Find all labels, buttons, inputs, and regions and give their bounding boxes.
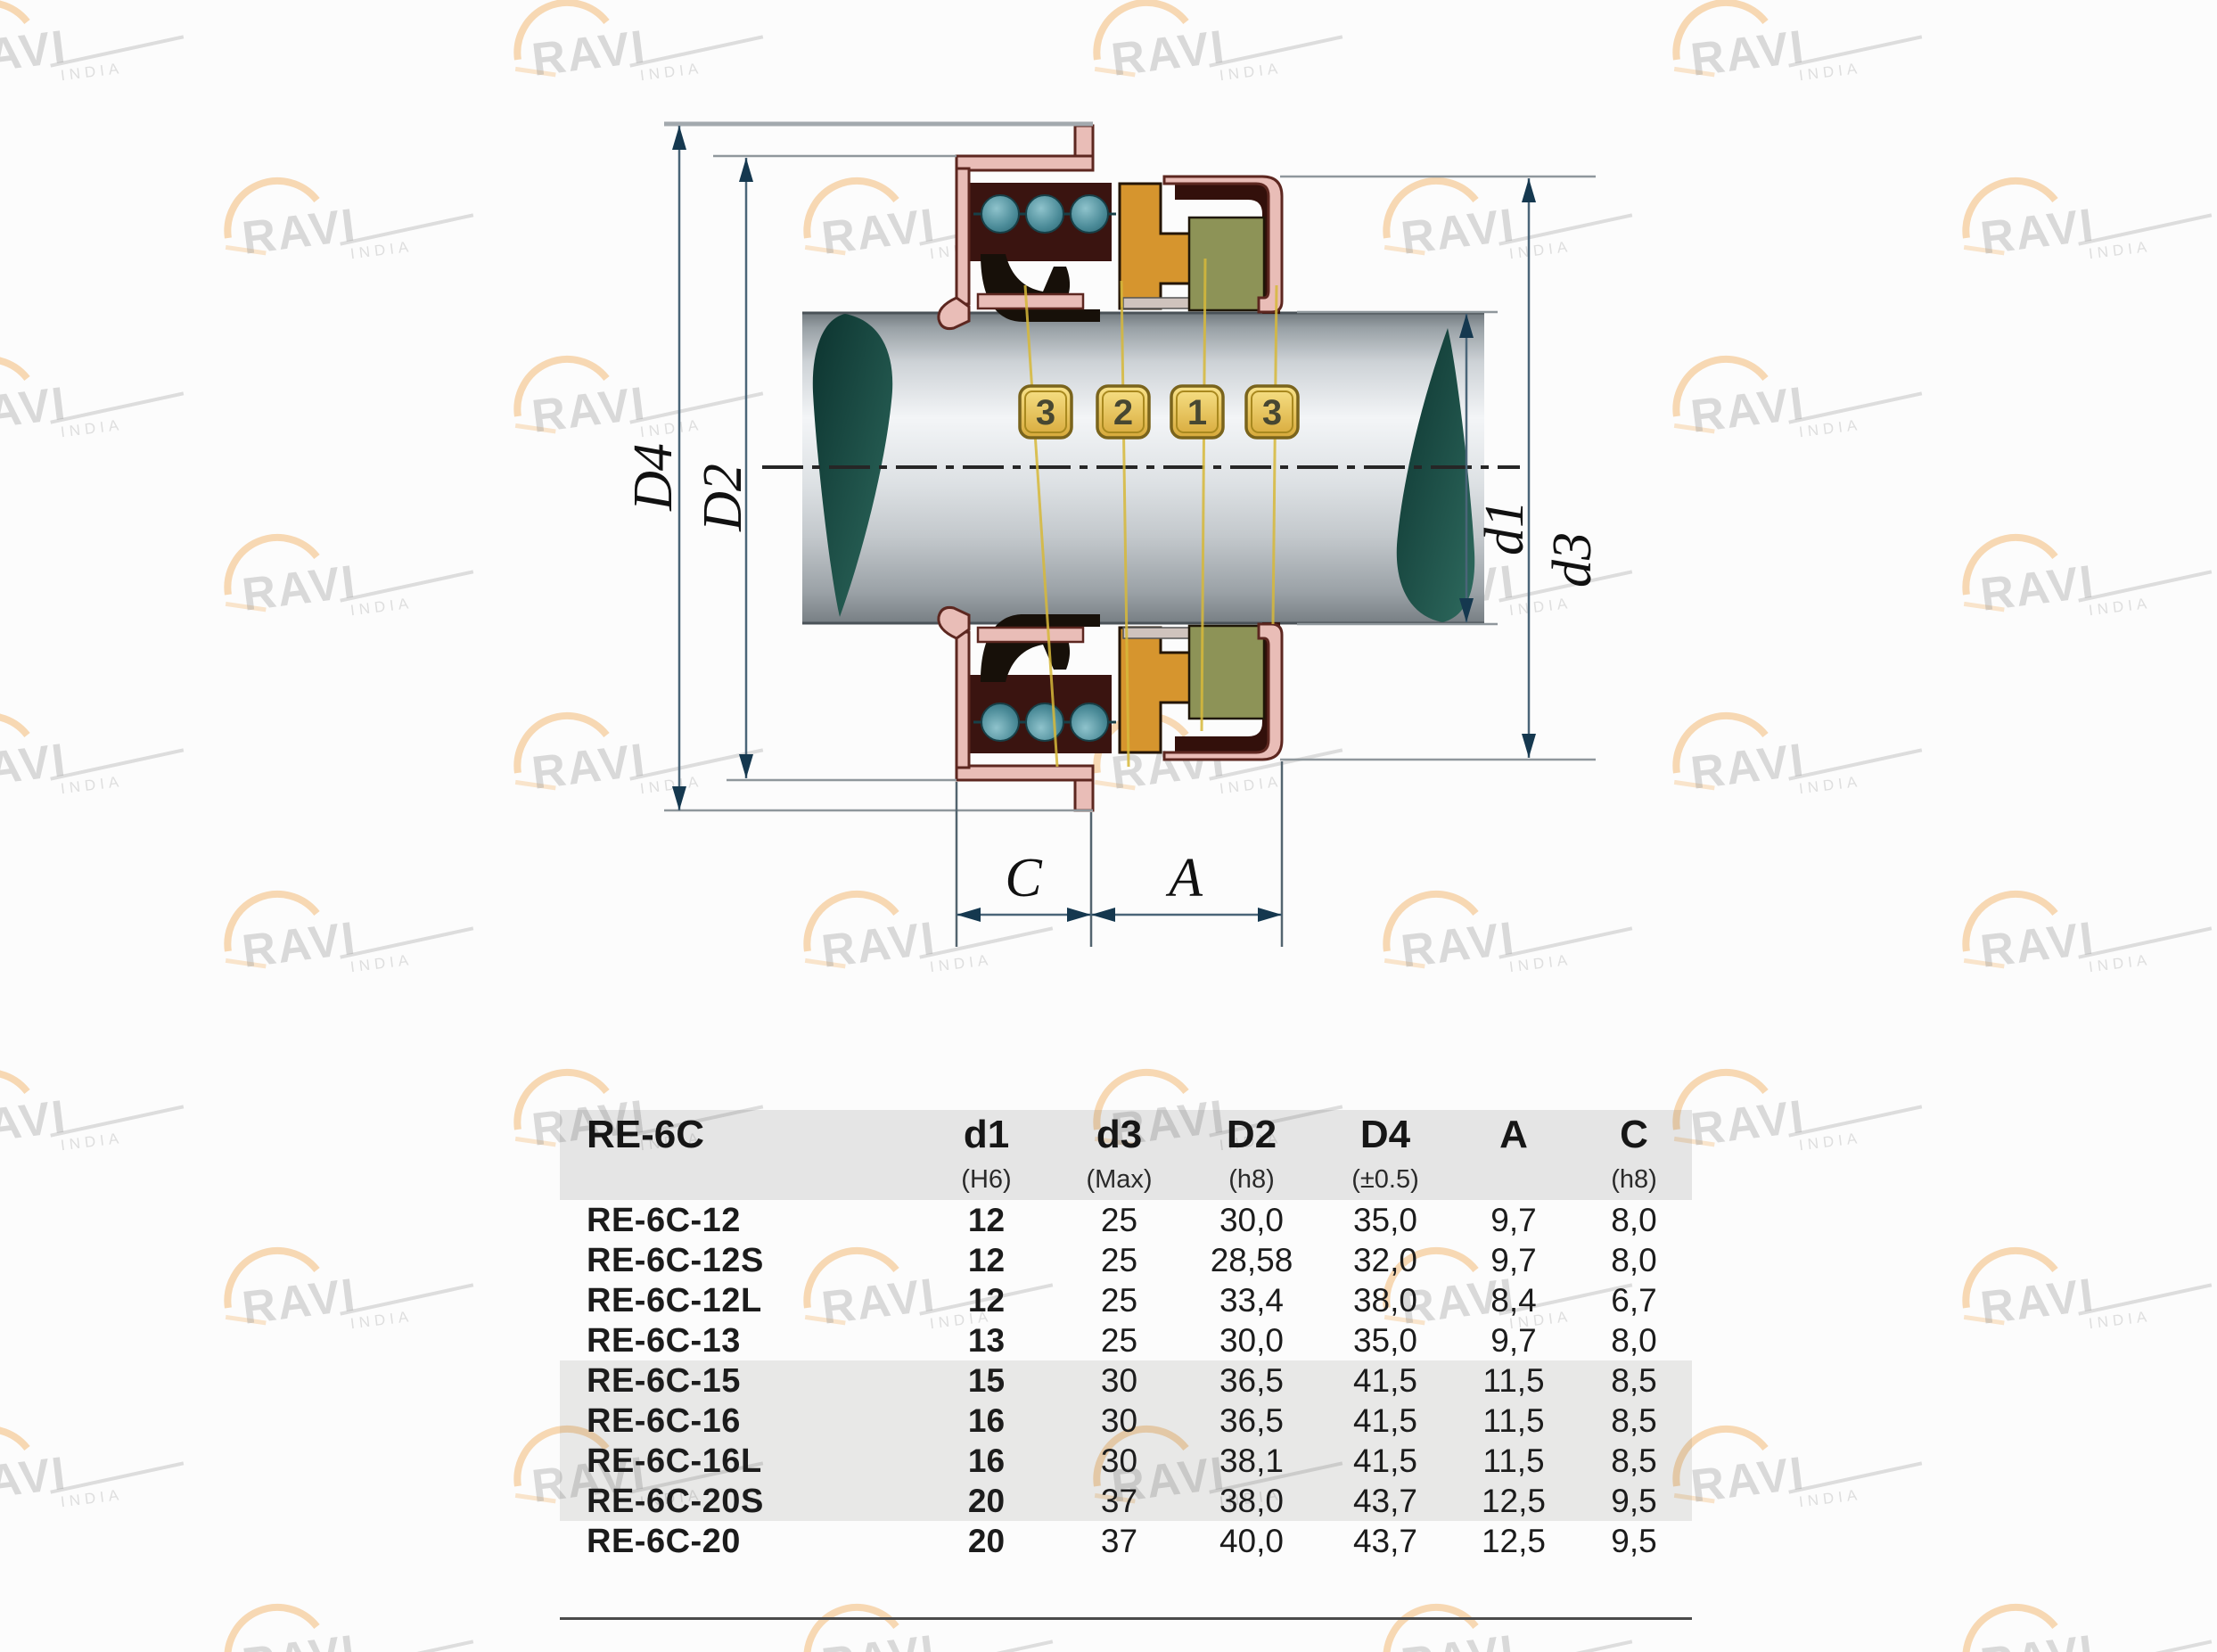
svg-text:RAVI: RAVI: [240, 1270, 360, 1335]
gland-top-wall: [957, 156, 1093, 170]
dim-label-D4: D4: [623, 443, 684, 512]
watermark: RAVIINDIA: [1653, 1388, 1931, 1527]
dim-label-d3: d3: [1542, 532, 1603, 588]
dim-label-d1: d1: [1474, 500, 1535, 555]
table-row: RE-6C-16 16 30 36,5 41,5 11,5 8,5: [560, 1401, 1692, 1441]
col-tolerance-D4: (±0.5): [1319, 1165, 1451, 1195]
seal-cross-section-diagram: 3 2 1 3: [0, 0, 2217, 1052]
spring-coil: [1071, 195, 1108, 233]
svg-text:INDIA: INDIA: [1798, 1130, 1862, 1154]
svg-text:INDIA: INDIA: [1798, 1486, 1862, 1510]
badge-label: 2: [1113, 393, 1133, 432]
model-name: RE-6C-15: [560, 1364, 918, 1398]
col-header-d3: d3: [1055, 1113, 1184, 1157]
badge-label: 1: [1187, 393, 1207, 432]
table-header-row: RE-6C d1 d3 D2 D4 A C: [560, 1110, 1692, 1159]
gland-foot: [939, 298, 969, 329]
page: RAVIINDIARAVIINDIARAVIINDIARAVIINDIARAVI…: [0, 0, 2217, 1652]
model-name: RE-6C-16L: [560, 1444, 918, 1478]
watermark: RAVIINDIA: [1942, 1210, 2217, 1349]
svg-text:RAVI: RAVI: [0, 1448, 70, 1513]
table-row: RE-6C-20 20 37 40,0 43,7 12,5 9,5: [560, 1521, 1692, 1561]
table-row: RE-6C-13 13 25 30,0 35,0 9,7 8,0: [560, 1320, 1692, 1360]
model-name: RE-6C-12S: [560, 1244, 918, 1278]
table-row: RE-6C-12S 12 25 28,58 32,0 9,7 8,0: [560, 1240, 1692, 1280]
svg-text:RAVI: RAVI: [1978, 1626, 2098, 1652]
svg-text:INDIA: INDIA: [60, 1130, 124, 1154]
svg-text:RAVI: RAVI: [819, 1626, 940, 1652]
col-header-D2: D2: [1184, 1113, 1319, 1157]
watermark: RAVIINDIA: [0, 1031, 193, 1171]
model-name: RE-6C-20S: [560, 1484, 918, 1518]
badge-label: 3: [1262, 393, 1282, 432]
svg-text:INDIA: INDIA: [349, 1308, 414, 1332]
watermark: RAVIINDIA: [204, 1566, 482, 1652]
dim-label-A: A: [1165, 848, 1203, 908]
svg-text:RAVI: RAVI: [1688, 1448, 1809, 1513]
table-row: RE-6C-16L 16 30 38,1 41,5 11,5 8,5: [560, 1441, 1692, 1481]
svg-text:RAVI: RAVI: [240, 1626, 360, 1652]
col-tolerance-D2: (h8): [1184, 1165, 1319, 1195]
model-name: RE-6C-12L: [560, 1284, 918, 1318]
watermark: RAVIINDIA: [1653, 1031, 1931, 1171]
col-tolerance-d1: (H6): [918, 1165, 1055, 1195]
model-name: RE-6C-20: [560, 1525, 918, 1558]
col-header-C: C: [1576, 1113, 1692, 1157]
model-name: RE-6C-13: [560, 1324, 918, 1358]
svg-text:RAVI: RAVI: [0, 1091, 70, 1156]
table-row: RE-6C-12 12 25 30,0 35,0 9,7 8,0: [560, 1200, 1692, 1240]
bellows: [981, 254, 1100, 322]
svg-text:RAVI: RAVI: [1978, 1270, 2098, 1335]
col-header-d1: d1: [918, 1113, 1055, 1157]
spring-coil: [981, 195, 1019, 233]
dim-label-D2: D2: [693, 464, 753, 532]
watermark: RAVIINDIA: [204, 1210, 482, 1349]
svg-text:RAVI: RAVI: [1399, 1626, 1519, 1652]
dimension-table: RE-6C d1 d3 D2 D4 A C (H6) (Max) (h8) (±…: [560, 1110, 1692, 1620]
svg-text:RAVI: RAVI: [1688, 1091, 1809, 1156]
table-row: RE-6C-12L 12 25 33,4 38,0 8,4 6,7: [560, 1280, 1692, 1320]
seal-assembly-lower: [939, 607, 1282, 810]
badge-label: 3: [1036, 393, 1055, 432]
watermark: RAVIINDIA: [1942, 1566, 2217, 1652]
seal-assembly-upper: [939, 126, 1282, 329]
table-subheader-row: (H6) (Max) (h8) (±0.5) (h8): [560, 1159, 1692, 1200]
col-header-D4: D4: [1319, 1113, 1451, 1157]
col-tolerance-C: (h8): [1576, 1165, 1692, 1195]
gland-left-wall: [957, 168, 969, 304]
table-row: RE-6C-15 15 30 36,5 41,5 11,5 8,5: [560, 1360, 1692, 1401]
watermark: RAVIINDIA: [0, 1388, 193, 1527]
col-tolerance-d3: (Max): [1055, 1165, 1184, 1195]
spring-coil: [1026, 195, 1063, 233]
table-row: RE-6C-20S 20 37 38,0 43,7 12,5 9,5: [560, 1481, 1692, 1521]
svg-text:INDIA: INDIA: [2088, 1308, 2152, 1332]
col-header-A: A: [1451, 1113, 1576, 1157]
table-title: RE-6C: [560, 1113, 918, 1157]
svg-text:INDIA: INDIA: [60, 1486, 124, 1510]
model-name: RE-6C-12: [560, 1204, 918, 1237]
sleeve-lip: [978, 294, 1083, 308]
stationary-seat: [1189, 218, 1264, 310]
model-name: RE-6C-16: [560, 1404, 918, 1438]
dim-label-C: C: [1005, 848, 1042, 908]
